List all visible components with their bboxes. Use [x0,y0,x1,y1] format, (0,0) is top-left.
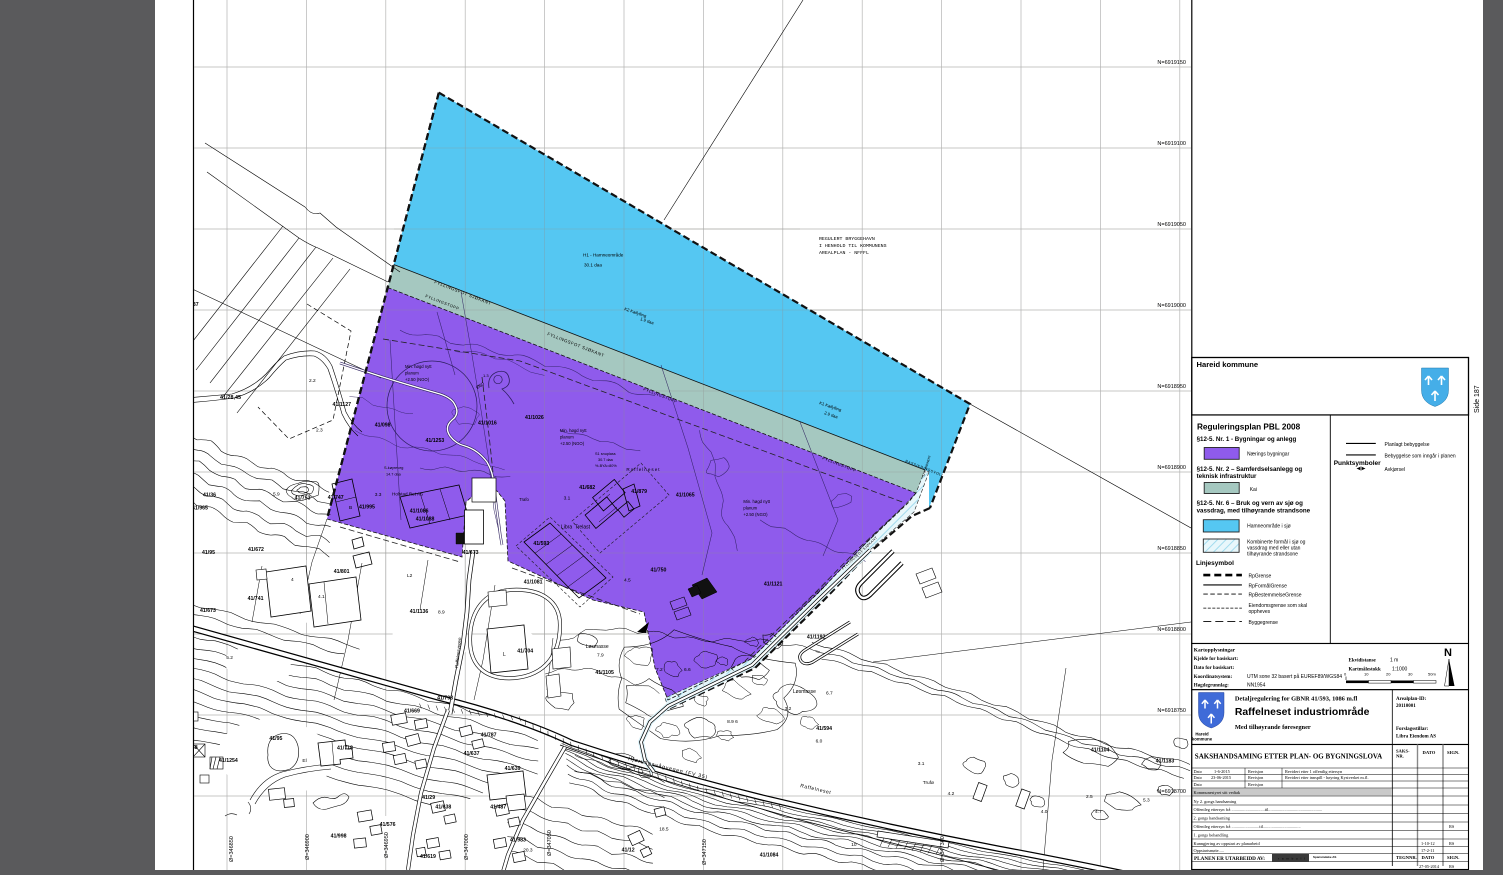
svg-text:S1 snuplass: S1 snuplass [595,452,616,456]
svg-text:Forslagsstillar:: Forslagsstillar: [1396,727,1429,732]
svg-text:REGULERT BRYGGEHAVN: REGULERT BRYGGEHAVN [819,236,875,242]
svg-text:DATO: DATO [1422,855,1435,860]
svg-text:Kjelde for basiskart:: Kjelde for basiskart: [1194,657,1239,662]
svg-text:41/36: 41/36 [203,493,216,499]
svg-text:Kai: Kai [1250,487,1257,493]
svg-text:RpBestemmelseGrense: RpBestemmelseGrense [1249,593,1302,599]
svg-text:41/95: 41/95 [202,550,215,556]
svg-text:41/673: 41/673 [200,608,216,614]
svg-text:14.7 daa: 14.7 daa [386,473,402,477]
svg-text:1. gongs behandling: 1. gongs behandling [1194,833,1230,838]
svg-text:I HENHOLD TIL KOMMUNENS: I HENHOLD TIL KOMMUNENS [819,243,887,249]
svg-text:Kartopplysningar: Kartopplysningar [1194,648,1236,654]
svg-text:+2.50 (NGO): +2.50 (NGO) [743,512,768,517]
svg-text:Nærings bygningar: Nærings bygningar [1247,452,1290,458]
svg-text:Side 187: Side 187 [1474,385,1481,413]
svg-text:SIGN.: SIGN. [1447,855,1459,860]
svg-text:4.7: 4.7 [1095,809,1102,815]
svg-text:41/747: 41/747 [328,495,344,501]
svg-text:RS: RS [1449,824,1455,829]
svg-text:41/619: 41/619 [420,854,436,860]
svg-text:N=6919000: N=6919000 [1157,303,1186,309]
svg-text:41/718: 41/718 [337,746,353,752]
svg-text:41/965: 41/965 [192,506,208,512]
svg-text:Ø=346950: Ø=346950 [384,832,390,858]
svg-text:Min. høgd nytt: Min. høgd nytt [405,364,432,369]
svg-text:5.3: 5.3 [1143,798,1150,804]
svg-text:2.5: 2.5 [1086,794,1093,800]
svg-text:Offentleg ettersyn frå .......: Offentleg ettersyn frå .................… [1194,807,1323,812]
svg-text:Med tilhøyrande føresegner: Med tilhøyrande føresegner [1235,724,1311,731]
svg-text:Planlagt bebyggelse: Planlagt bebyggelse [1385,442,1430,448]
svg-text:41/750: 41/750 [651,568,667,574]
svg-text:Ø=346850: Ø=346850 [229,836,235,862]
svg-text:8.9 6: 8.9 6 [727,719,738,725]
svg-text:§12-5. Nr. 1 - Bygningar og an: §12-5. Nr. 1 - Bygningar og anlegg [1197,436,1297,443]
svg-text:RpGrense: RpGrense [1249,574,1272,580]
svg-text:41/1065: 41/1065 [676,492,695,498]
svg-text:41/1026: 41/1026 [525,415,544,421]
svg-text:N=6919050: N=6919050 [1157,222,1186,228]
svg-text:RpFormålGrense: RpFormålGrense [1249,582,1288,589]
svg-text:6.7: 6.7 [826,691,833,697]
svg-text:N=6918900: N=6918900 [1157,465,1186,471]
svg-text:41/12: 41/12 [622,848,635,854]
svg-text:Detaljregulering for GBNR 41/5: Detaljregulering for GBNR 41/593, 1086 m… [1235,696,1358,703]
svg-text:N=6919100: N=6919100 [1157,141,1186,147]
svg-text:r a m b o l l: r a m b o l l [1278,856,1306,860]
svg-text:DATO: DATO [1423,750,1436,755]
svg-text:El: El [302,758,306,764]
svg-text:L2: L2 [407,573,413,579]
svg-text:§12-5. Nr. 2 – Samferdselsanle: §12-5. Nr. 2 – Samferdselsanlegg og [1197,466,1303,473]
svg-text:Løsmasse: Løsmasse [793,689,816,695]
svg-text:41/637: 41/637 [464,751,480,757]
svg-text:H1 - Hamneområde: H1 - Hamneområde [583,252,624,258]
svg-text:Ekvidistanse: Ekvidistanse [1349,659,1377,664]
svg-text:Oppstartsmøte.....: Oppstartsmøte..... [1194,848,1224,853]
svg-text:3.1: 3.1 [918,761,925,767]
svg-text:20110001: 20110001 [1396,704,1416,709]
svg-text:41/576: 41/576 [380,822,396,828]
svg-text:RS: RS [1449,864,1455,869]
svg-text:41/487: 41/487 [490,805,506,811]
svg-text:4: 4 [291,577,294,583]
svg-text:30.7 daa: 30.7 daa [598,458,614,462]
svg-text:Min. høgd nytt: Min. høgd nytt [560,428,587,433]
svg-text:4.5: 4.5 [624,578,631,584]
svg-text:TEGNNR.: TEGNNR. [1396,855,1417,860]
svg-text:N: N [1444,647,1452,659]
svg-text:kommune: kommune [1192,737,1213,742]
svg-text:Reguleringsplan PBL 2008: Reguleringsplan PBL 2008 [1197,423,1301,432]
svg-text:41/1254: 41/1254 [219,758,238,764]
svg-text:Dato: Dato [1194,782,1202,787]
svg-text:Ø=347000: Ø=347000 [464,834,470,860]
svg-text:41/1136: 41/1136 [410,609,429,615]
svg-text:SAKSHANDSAMING ETTER PLAN- OG: SAKSHANDSAMING ETTER PLAN- OG BYGNINGSLO… [1195,753,1382,761]
svg-text:41/29: 41/29 [422,795,435,801]
svg-text:7.9: 7.9 [597,653,604,659]
svg-text:30.1 daa: 30.1 daa [584,263,602,268]
svg-text:41/638: 41/638 [435,805,451,811]
svg-text:6.6: 6.6 [684,667,691,673]
svg-text:41/593: 41/593 [533,541,549,547]
svg-text:Revisjon: Revisjon [1248,769,1264,774]
svg-text:3.2: 3.2 [785,706,792,712]
svg-text:41/983: 41/983 [510,838,526,844]
svg-text:Bebyggelse som inngår i planen: Bebyggelse som inngår i planen [1385,452,1456,459]
svg-text:Ny 2. gongs handsaming: Ny 2. gongs handsaming [1194,799,1238,804]
svg-text:oppheves: oppheves [1249,609,1271,615]
svg-text:+2.50 (NGO): +2.50 (NGO) [560,441,585,446]
svg-text:41/669: 41/669 [404,709,420,715]
svg-text:UTM sone 32 basert på EUREF89/: UTM sone 32 basert på EUREF89/WGS84 [1247,673,1342,680]
svg-text:41/1183: 41/1183 [1156,759,1175,765]
svg-text:2.3: 2.3 [316,428,323,434]
svg-text:NN1954: NN1954 [1247,683,1266,689]
svg-text:N=6918750: N=6918750 [1157,708,1186,714]
svg-text:18.5: 18.5 [659,827,669,833]
svg-text:41/1081: 41/1081 [524,580,543,586]
svg-text:+2.50 (NGO): +2.50 (NGO) [405,377,430,382]
svg-text:41/673: 41/673 [463,550,479,556]
svg-text:S-køyreveg: S-køyreveg [384,466,403,470]
svg-text:§12-5. Nr. 6 – Bruk og vern av: §12-5. Nr. 6 – Bruk og vern av sjø og [1197,500,1303,507]
svg-text:tilhøyrande strandsone: tilhøyrande strandsone [1247,552,1298,558]
svg-text:41/639: 41/639 [505,766,521,772]
svg-text:41/704: 41/704 [517,649,533,655]
svg-text:Ø=347050: Ø=347050 [547,830,553,856]
svg-text:27-05-2014: 27-05-2014 [1419,864,1440,869]
svg-text:N=6918850: N=6918850 [1157,546,1186,552]
svg-text:Linjesymbol: Linjesymbol [1196,560,1234,567]
svg-text:6.0: 6.0 [816,739,823,745]
svg-text:41/998: 41/998 [331,834,347,840]
svg-text:SIGN.: SIGN. [1447,750,1459,755]
svg-text:5.9: 5.9 [273,492,280,498]
svg-text:23-06-2015: 23-06-2015 [1211,775,1231,780]
svg-text:1.3: 1.3 [483,373,489,378]
svg-text:Offentleg ettersyn frå .......: Offentleg ettersyn frå .................… [1194,824,1301,829]
svg-text:41/098: 41/098 [375,423,391,429]
svg-text:41/879: 41/879 [631,489,647,495]
svg-text:Kunngjering av oppstart av pla: Kunngjering av oppstart av planarbeid [1194,841,1261,846]
svg-text:Trufø: Trufø [923,780,934,786]
svg-text:1:1000: 1:1000 [1392,667,1408,673]
svg-text:Ø=347300: Ø=347300 [940,836,946,862]
svg-text:17-2-11: 17-2-11 [1421,848,1434,853]
svg-text:Arealplan-ID:: Arealplan-ID: [1396,697,1427,702]
svg-text:Løsmasse: Løsmasse [586,644,609,650]
svg-text:Ø=346900: Ø=346900 [305,834,311,860]
svg-text:4.2: 4.2 [948,791,955,797]
svg-text:41/1121: 41/1121 [764,581,783,587]
svg-text:10: 10 [1364,672,1369,677]
svg-text:Holstad Ret AS: Holstad Ret AS [392,491,423,496]
svg-text:8.9: 8.9 [438,610,445,616]
svg-text:Hamneområde i sjø: Hamneområde i sjø [1247,523,1291,530]
svg-text:L: L [503,652,506,658]
svg-text:Kombinerte formål i sjø og: Kombinerte formål i sjø og [1247,539,1306,546]
svg-text:1 m: 1 m [1390,658,1398,664]
svg-text:Punktsymboler: Punktsymboler [1334,460,1381,467]
svg-text:vassdrag, med tilhøyrande stra: vassdrag, med tilhøyrande strandsone [1197,507,1311,514]
svg-text:Avkjørsel: Avkjørsel [1385,467,1405,473]
svg-text:41/1192: 41/1192 [807,635,826,641]
svg-text:41/1253: 41/1253 [426,438,445,444]
svg-text:N=6918800: N=6918800 [1157,627,1186,633]
svg-text:Raffelneset industriområde: Raffelneset industriområde [1235,706,1370,718]
svg-text:Min. høgd nytt: Min. høgd nytt [743,499,770,504]
svg-text:planum: planum [405,371,419,376]
svg-text:41/594: 41/594 [816,726,832,732]
svg-text:Revisjon: Revisjon [1248,775,1264,780]
svg-text:41/682: 41/682 [579,485,595,491]
svg-text:Dato: Dato [1194,769,1202,774]
svg-text:41/1105: 41/1105 [595,670,614,676]
svg-text:Revisjon: Revisjon [1248,782,1264,787]
svg-text:Kommunestyret sitt vedtak: Kommunestyret sitt vedtak [1194,790,1241,795]
svg-text:20.3: 20.3 [523,848,533,854]
svg-text:41/1104: 41/1104 [1091,748,1110,754]
svg-text:41/1127: 41/1127 [333,402,352,408]
svg-text:2.2: 2.2 [309,378,316,384]
svg-text:Dato for basiskart:: Dato for basiskart: [1194,666,1235,671]
svg-text:20: 20 [1386,672,1391,677]
svg-text:Dato: Dato [1194,775,1202,780]
svg-text:10: 10 [851,842,857,848]
svg-text:planum: planum [743,506,757,511]
svg-text:%-BYA=80%: %-BYA=80% [595,464,617,468]
svg-text:teknisk infrastruktur: teknisk infrastruktur [1197,473,1257,480]
svg-text:41/801: 41/801 [334,569,350,575]
svg-text:7.2: 7.2 [656,667,663,673]
svg-text:41/995: 41/995 [359,505,375,511]
svg-text:41/1086: 41/1086 [410,509,429,515]
svg-text:Koordinatsystem:: Koordinatsystem: [1194,675,1233,680]
svg-text:41/798: 41/798 [437,696,453,702]
svg-text:Spanvindeke AS: Spanvindeke AS [1313,855,1336,859]
svg-text:2. gongs handsaming: 2. gongs handsaming [1194,816,1231,821]
svg-text:3.3: 3.3 [375,492,382,498]
svg-text:5.2: 5.2 [226,655,233,661]
svg-text:N=6918700: N=6918700 [1157,789,1186,795]
svg-text:41/741: 41/741 [248,596,264,602]
svg-text:41/753: 41/753 [295,496,311,502]
svg-text:Revidert etter 1 offentlig ett: Revidert etter 1 offentlig ettersyn [1285,769,1343,774]
svg-text:41/672: 41/672 [248,547,264,553]
svg-text:Revidert etter innspill - høyr: Revidert etter innspill - høyring Kystve… [1285,775,1369,780]
svg-text:Libra Eiendom AS: Libra Eiendom AS [1396,735,1436,740]
svg-text:NR.: NR. [1396,754,1404,759]
svg-text:N=6919150: N=6919150 [1157,60,1186,66]
svg-text:PLANEN ER UTARBEIDD AV:: PLANEN ER UTARBEIDD AV: [1194,856,1265,862]
svg-text:4.0: 4.0 [1041,809,1048,815]
svg-text:Høgdegrunnlag:: Høgdegrunnlag: [1194,684,1229,689]
svg-text:AREALPLAN - NFFFL: AREALPLAN - NFFFL [819,250,869,256]
svg-text:41/95: 41/95 [269,736,282,742]
svg-text:3.1: 3.1 [564,496,571,502]
svg-text:41/1016: 41/1016 [478,421,497,427]
svg-text:Byggegrense: Byggegrense [1249,620,1279,626]
svg-text:30: 30 [1408,672,1413,677]
svg-text:planum: planum [560,435,574,440]
svg-text:N=6918950: N=6918950 [1157,384,1186,390]
svg-text:Trafo: Trafo [519,497,529,502]
svg-text:B: B [349,505,352,511]
svg-text:1-6-2015: 1-6-2015 [1214,769,1230,774]
svg-text:RS: RS [1449,841,1455,846]
svg-text:4.1: 4.1 [318,594,325,600]
svg-text:Hareid kommune: Hareid kommune [1197,360,1259,369]
svg-text:41/1088: 41/1088 [416,516,435,522]
svg-text:41/28,45: 41/28,45 [220,395,241,401]
svg-text:1-10-12: 1-10-12 [1421,841,1435,846]
svg-text:Ø=347150: Ø=347150 [702,839,708,865]
svg-text:Libra Trelast: Libra Trelast [561,525,591,531]
svg-text:50m: 50m [1428,672,1436,677]
svg-text:41/787: 41/787 [481,733,497,739]
svg-text:41/1084: 41/1084 [760,853,779,859]
